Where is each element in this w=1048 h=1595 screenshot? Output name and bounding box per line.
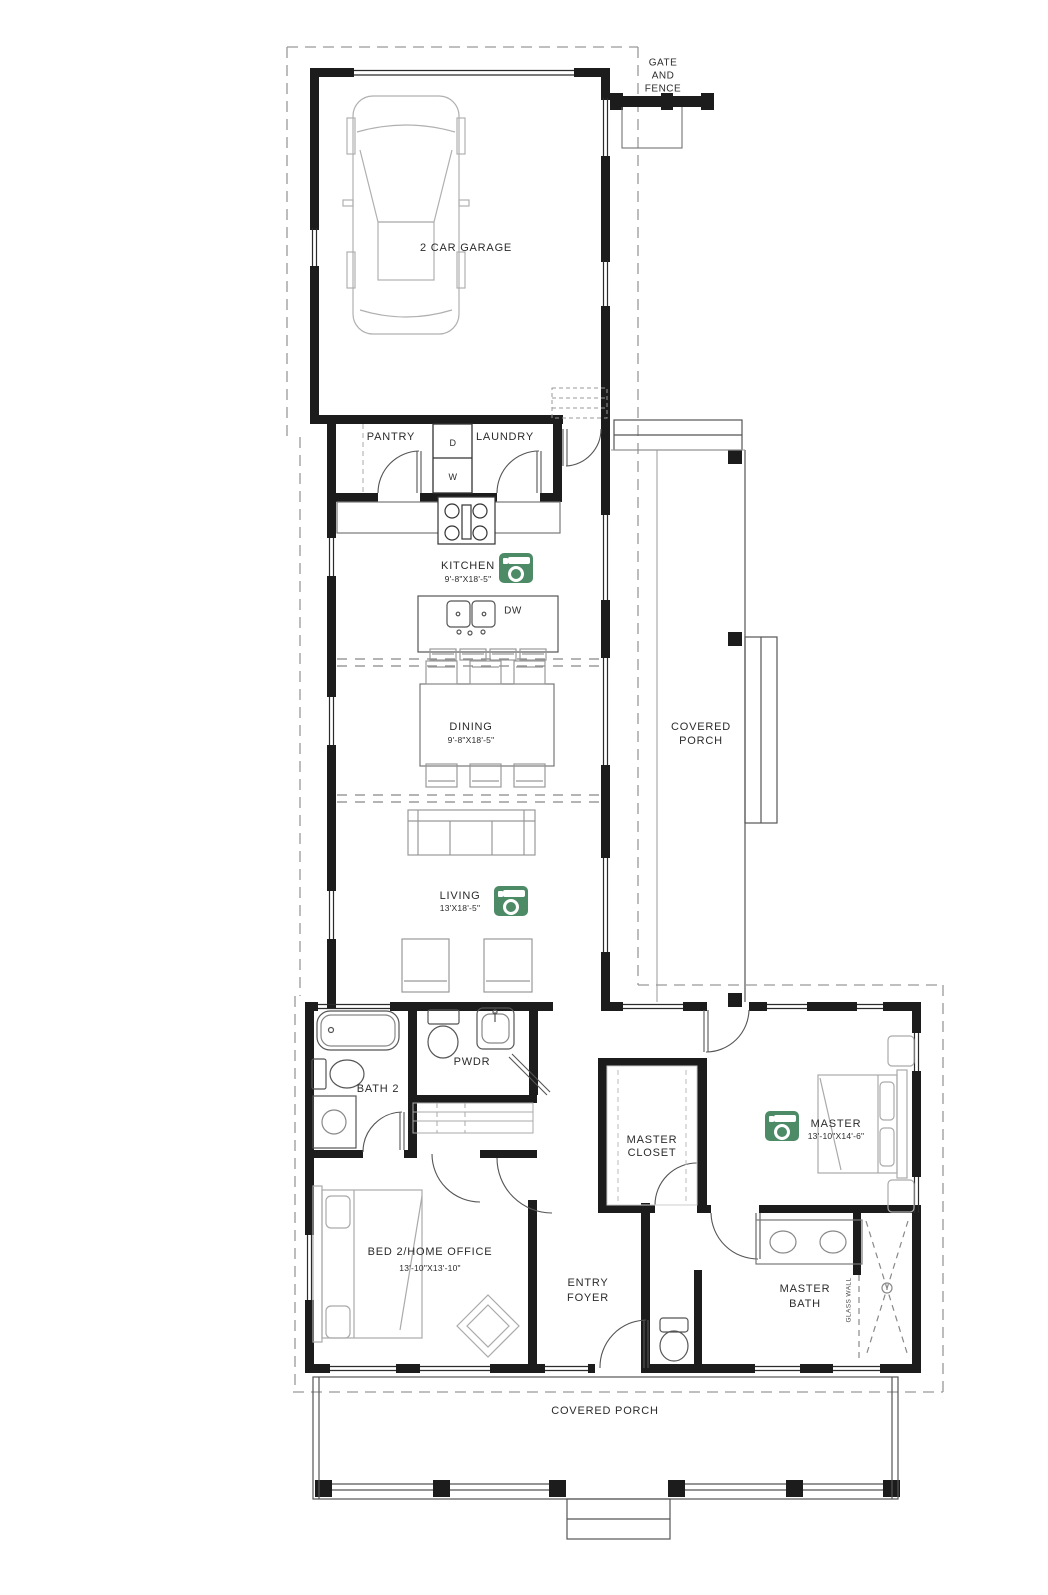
- washer-label: W: [449, 472, 458, 482]
- bath2-label: BATH 2: [357, 1083, 400, 1095]
- camera-flash-bar: [774, 1115, 796, 1122]
- dining-dims: 9'-8"X18'-5": [448, 735, 495, 745]
- living-label: LIVING: [440, 890, 481, 902]
- dining-label: DINING: [449, 721, 492, 733]
- powder-fixtures: [428, 1008, 514, 1058]
- camera-lens-icon: [774, 1124, 790, 1140]
- camera-icon-kitchen[interactable]: [499, 553, 533, 583]
- kitchen-label: KITCHEN: [441, 560, 495, 572]
- gate-fence-label-line1: GATE: [649, 58, 677, 69]
- front-porch: [313, 1377, 898, 1539]
- entry-foyer-label-line1: ENTRY: [567, 1277, 608, 1289]
- floor-plan: GATE AND FENCE 2 CAR GARAGE PANTRY LAUND…: [0, 0, 1048, 1595]
- bed2-dims: 13'-10"X13'-10": [399, 1263, 460, 1273]
- bed2-label: BED 2/HOME OFFICE: [368, 1246, 493, 1258]
- side-porch-label-line2: PORCH: [679, 735, 723, 747]
- camera-flash-tab: [503, 558, 508, 564]
- master-dims: 13'-10"X14'-6": [808, 1131, 865, 1141]
- gate-fence-label-line2: AND: [652, 71, 675, 82]
- powder-label: PWDR: [454, 1056, 491, 1068]
- attic-access: [413, 1103, 533, 1133]
- camera-icon-living[interactable]: [494, 886, 528, 916]
- camera-flash-bar: [508, 557, 530, 564]
- camera-icon-master[interactable]: [765, 1111, 799, 1141]
- kitchen-dims: 9'-8"X18'-5": [445, 574, 492, 584]
- master-bath-label-line1: MASTER: [780, 1283, 831, 1295]
- gate-fence-label-line3: FENCE: [645, 84, 681, 95]
- dryer-label: D: [450, 438, 457, 448]
- camera-lens-icon: [503, 899, 519, 915]
- camera-flash-bar: [503, 890, 525, 897]
- garage-shelf: [552, 388, 607, 418]
- entry-foyer-label-line2: FOYER: [567, 1292, 609, 1304]
- floorplan-svg: [0, 0, 1048, 1595]
- bath2-fixtures: [312, 1011, 399, 1148]
- garage-label: 2 CAR GARAGE: [420, 242, 512, 254]
- living-dims: 13'X18'-5": [440, 903, 480, 913]
- dishwasher-label: DW: [504, 606, 522, 617]
- side-porch-label-line1: COVERED: [671, 721, 731, 733]
- master-closet-label-line2: CLOSET: [628, 1147, 677, 1159]
- master-label: MASTER: [811, 1118, 862, 1130]
- side-porch: [611, 420, 777, 1002]
- pantry-label: PANTRY: [367, 431, 415, 443]
- camera-lens-icon: [508, 566, 524, 582]
- master-closet-label-line1: MASTER: [627, 1134, 678, 1146]
- glass-wall-label: GLASS WALL: [846, 1278, 853, 1323]
- front-porch-label: COVERED PORCH: [551, 1405, 659, 1417]
- camera-flash-tab: [769, 1116, 774, 1122]
- camera-flash-tab: [498, 891, 503, 897]
- windows: [308, 71, 919, 1371]
- fence-structure: [622, 107, 682, 148]
- laundry-label: LAUNDRY: [476, 431, 534, 443]
- car: [343, 96, 469, 334]
- master-bath-label-line2: BATH: [789, 1298, 821, 1310]
- washer-dryer-unit: [433, 424, 472, 493]
